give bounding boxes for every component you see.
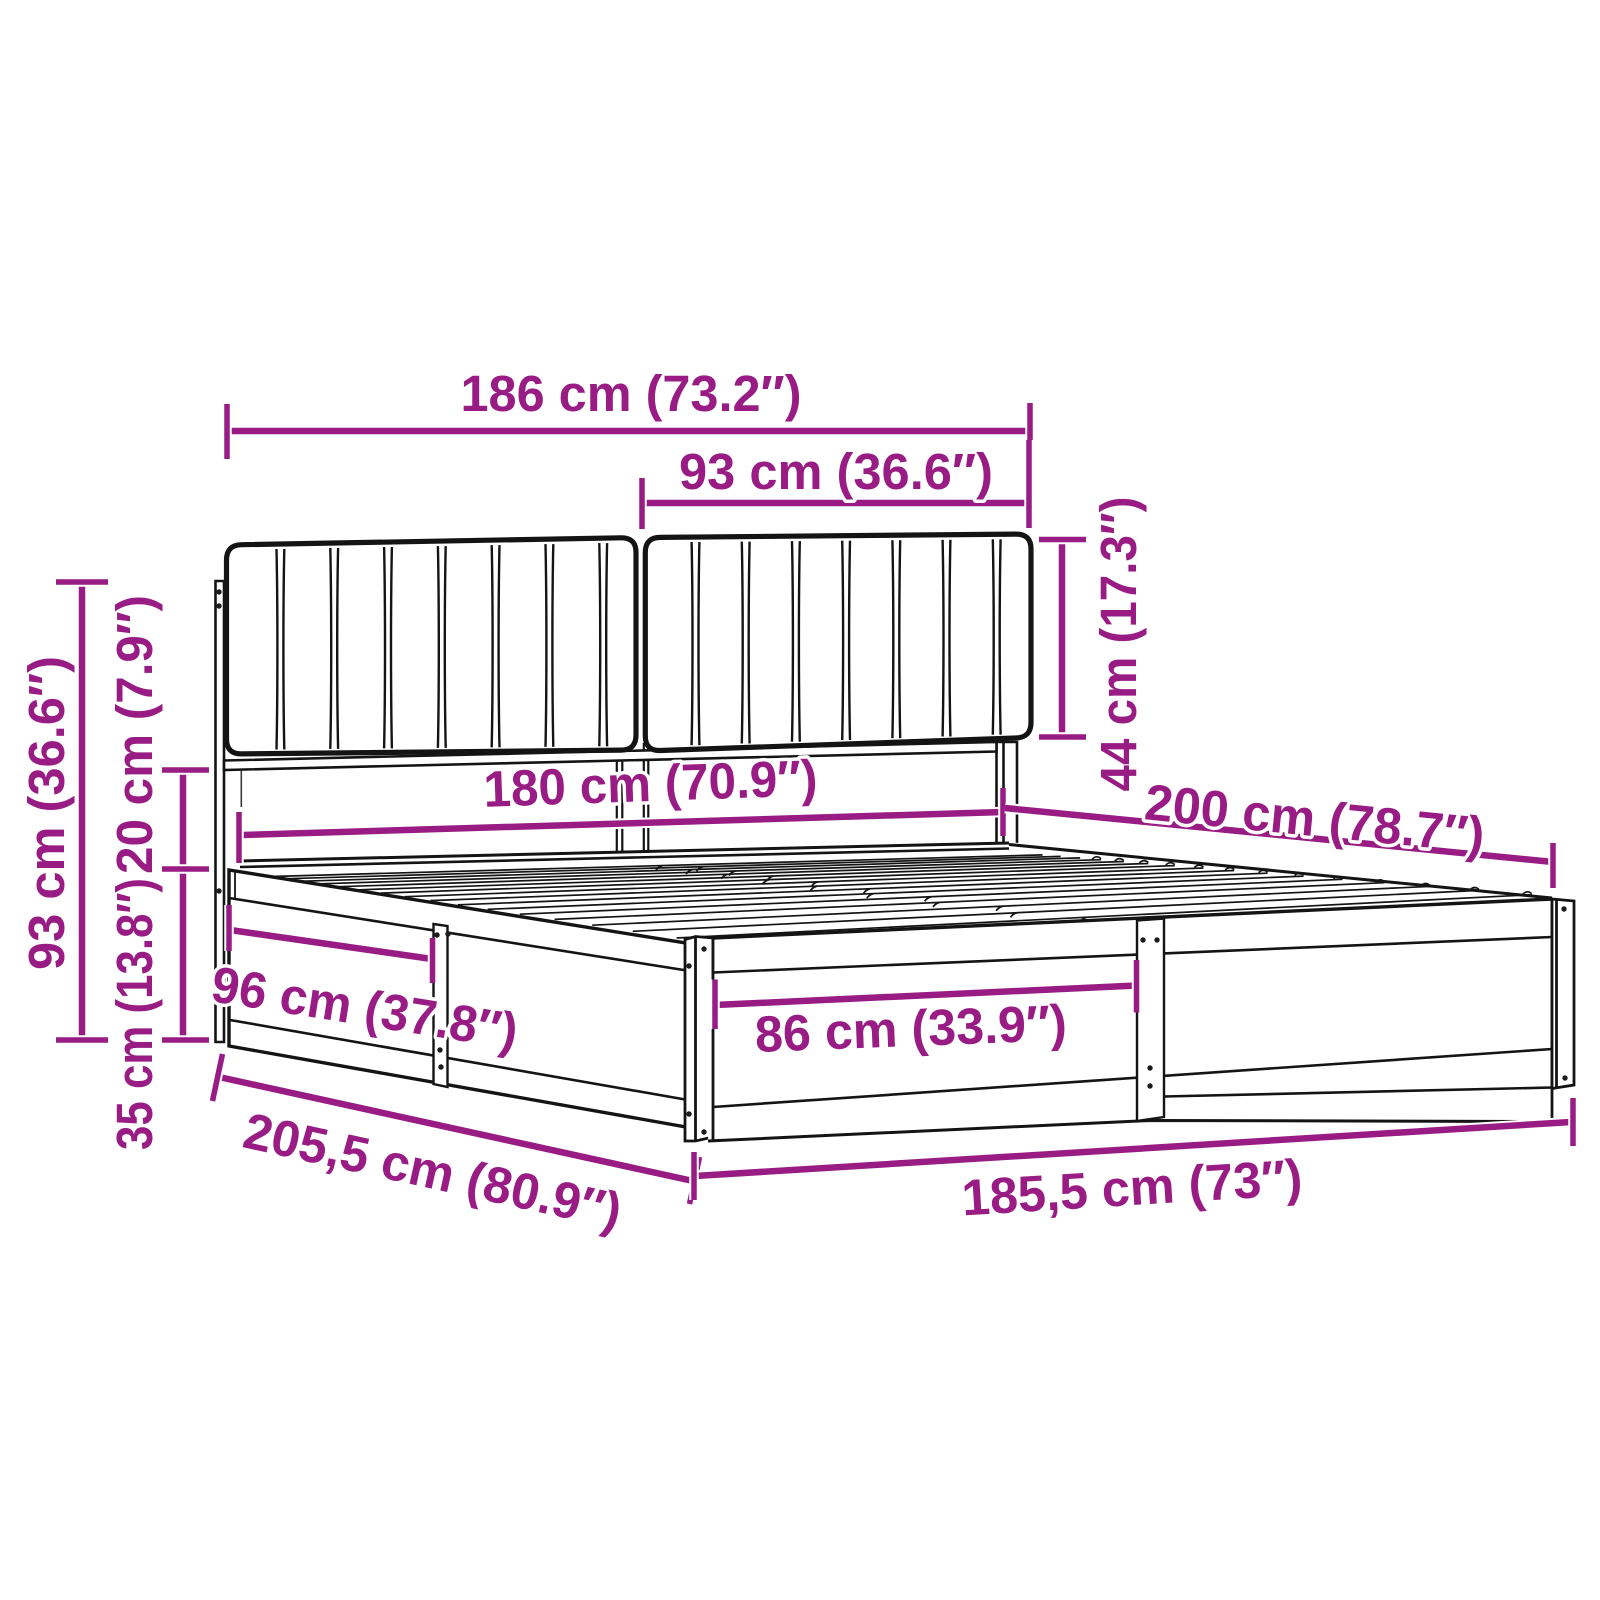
svg-text:93 cm (36.6″): 93 cm (36.6″)	[18, 656, 75, 970]
svg-text:35 cm (13.8″): 35 cm (13.8″)	[106, 878, 163, 1150]
svg-text:180 cm (70.9″): 180 cm (70.9″)	[482, 749, 818, 818]
svg-text:44 cm (17.3″): 44 cm (17.3″)	[1090, 497, 1147, 792]
svg-text:93 cm (36.6″): 93 cm (36.6″)	[679, 443, 993, 500]
svg-text:86 cm (33.9″): 86 cm (33.9″)	[754, 994, 1068, 1063]
svg-text:186 cm (73.2″): 186 cm (73.2″)	[461, 365, 802, 422]
svg-text:20 cm (7.9″): 20 cm (7.9″)	[106, 595, 163, 874]
